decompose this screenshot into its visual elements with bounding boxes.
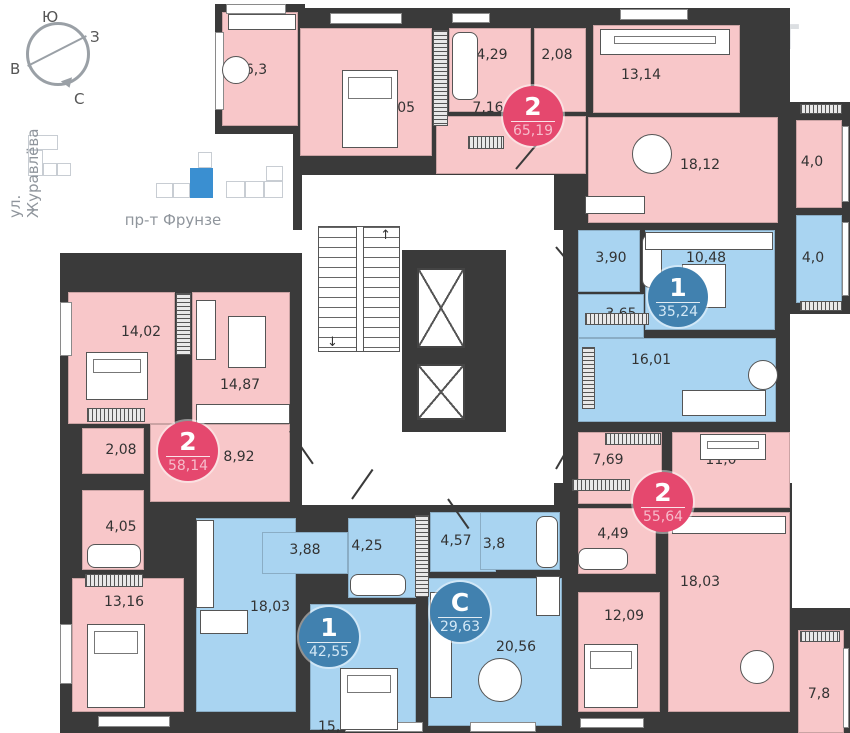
- window: [842, 126, 849, 202]
- window: [60, 624, 72, 684]
- room-area-label-bath-4-25: 4,25: [351, 538, 382, 554]
- room-area-label-hall-8-92: 8,92: [223, 449, 254, 465]
- badge-divider: [656, 302, 699, 303]
- floor-plan: ↑↓6,316,054,292,087,1613,1418,124,04,03,…: [0, 0, 850, 733]
- furniture-circle: [478, 658, 522, 702]
- wardrobe-hatch: [176, 293, 191, 355]
- room-area-label-hall-7-16: 7,16: [472, 100, 503, 116]
- floor-plan-page: ЮЗВС ул. Журавлёва пр-т Фрунзе ОНРЕАЛТ Н…: [0, 0, 850, 733]
- apartment-badge-apt-1-35[interactable]: 135,24: [648, 267, 708, 327]
- furniture-bed: [700, 434, 766, 460]
- furniture-rect: [196, 300, 216, 360]
- window: [330, 13, 402, 24]
- apartment-rooms-count: 2: [654, 480, 671, 505]
- room-area-label-bath-4-49: 4,49: [597, 526, 628, 542]
- window: [226, 4, 286, 14]
- wardrobe-hatch: [468, 136, 504, 149]
- furniture-tub: [350, 574, 406, 596]
- apartment-total-area: 29,63: [440, 620, 480, 634]
- furniture-rect: [645, 232, 773, 250]
- wardrobe-hatch: [433, 30, 448, 126]
- wardrobe-hatch: [800, 104, 842, 114]
- room-area-label-bath-4-29: 4,29: [476, 47, 507, 63]
- room-area-label-bath-4-05: 4,05: [105, 519, 136, 535]
- apartment-badge-apt-2-55[interactable]: 255,64: [633, 472, 693, 532]
- furniture-circle: [748, 360, 778, 390]
- room-area-label-balcony-7-8: 7,8: [808, 686, 830, 702]
- room-kitchen-18-03-b: [668, 512, 790, 712]
- wardrobe-hatch: [87, 408, 145, 422]
- badge-divider: [511, 121, 554, 122]
- furniture-rect: [536, 576, 560, 616]
- furniture-tub: [452, 32, 478, 100]
- furniture-bed: [600, 29, 730, 55]
- stairs[interactable]: ↑↓: [318, 226, 400, 352]
- furniture-rect: [228, 316, 266, 368]
- elevator-icon[interactable]: [417, 364, 465, 420]
- room-area-label-living-16-01: 16,01: [631, 352, 671, 368]
- room-area-label-living-14-87: 14,87: [220, 377, 260, 393]
- furniture-bed: [340, 668, 398, 730]
- furniture-rect: [200, 610, 248, 634]
- room-area-label-hall-4-57: 4,57: [440, 533, 471, 549]
- apartment-rooms-count: 2: [524, 94, 541, 119]
- furniture-rect: [196, 404, 290, 424]
- furniture-tub: [536, 516, 558, 568]
- room-area-label-bedroom-13-14: 13,14: [621, 67, 661, 83]
- apartment-badge-apt-1-42[interactable]: 142,55: [299, 607, 359, 667]
- window: [580, 718, 644, 728]
- apartment-badge-apt-2-65[interactable]: 265,19: [503, 86, 563, 146]
- furniture-rect: [196, 520, 214, 608]
- wardrobe-hatch: [800, 301, 842, 311]
- furniture-bed: [342, 70, 398, 148]
- room-area-label-wc-2-08: 2,08: [541, 47, 572, 63]
- apartment-rooms-count: 1: [669, 275, 686, 300]
- room-area-label-bedroom-13-16: 13,16: [104, 594, 144, 610]
- elevator-icon[interactable]: [417, 268, 465, 348]
- apartment-total-area: 42,55: [309, 645, 349, 659]
- room-area-label-wc-2-08-b: 2,08: [105, 442, 136, 458]
- stairs-down-arrow-icon: ↓: [327, 336, 338, 349]
- furniture-rect: [672, 516, 786, 534]
- apartment-rooms-count: 2: [179, 429, 196, 454]
- apartment-badge-apt-s-29[interactable]: С29,63: [430, 582, 490, 642]
- furniture-circle: [222, 56, 250, 84]
- apartment-badge-apt-2-58[interactable]: 258,14: [158, 421, 218, 481]
- apartment-rooms-count: С: [451, 590, 469, 615]
- furniture-circle: [740, 650, 774, 684]
- room-area-label-balcony-4-0-b: 4,0: [802, 250, 824, 266]
- furniture-bed: [87, 624, 145, 708]
- stairs-up-arrow-icon: ↑: [380, 229, 391, 242]
- furniture-bed: [584, 644, 638, 708]
- badge-divider: [438, 617, 481, 618]
- room-area-label-bedroom-12-09: 12,09: [604, 608, 644, 624]
- room-area-label-hall-3-88: 3,88: [289, 542, 320, 558]
- wardrobe-hatch: [85, 574, 143, 587]
- stairs-divider: [356, 227, 364, 351]
- apartment-total-area: 55,64: [643, 510, 683, 524]
- badge-divider: [166, 456, 209, 457]
- window: [842, 222, 849, 296]
- furniture-circle: [632, 134, 672, 174]
- wardrobe-hatch: [605, 433, 661, 445]
- room-area-label-kitchen-18-03-b: 18,03: [680, 574, 720, 590]
- window: [843, 648, 849, 728]
- room-area-label-living-18-12: 18,12: [680, 157, 720, 173]
- room-area-label-bedroom-14-02: 14,02: [121, 324, 161, 340]
- furniture-rect: [585, 196, 645, 214]
- room-area-label-kitchen-18-03-a: 18,03: [250, 599, 290, 615]
- furniture-tub: [578, 548, 628, 570]
- furniture-rect: [228, 14, 296, 30]
- room-area-label-bath-3-90: 3,90: [595, 250, 626, 266]
- wardrobe-hatch: [585, 313, 649, 325]
- window: [60, 302, 72, 356]
- apartment-total-area: 58,14: [168, 459, 208, 473]
- window: [620, 9, 688, 20]
- wardrobe-hatch: [800, 631, 840, 642]
- room-area-label-bath-3-8: 3,8: [483, 536, 505, 552]
- apartment-rooms-count: 1: [320, 615, 337, 640]
- wardrobe-hatch: [415, 515, 429, 597]
- wardrobe-hatch: [572, 479, 630, 491]
- room-area-label-studio-20-56: 20,56: [496, 639, 536, 655]
- furniture-tub: [87, 544, 141, 568]
- room-area-label-balcony-4-0-a: 4,0: [801, 154, 823, 170]
- badge-divider: [307, 642, 350, 643]
- furniture-bed: [86, 352, 148, 400]
- apartment-total-area: 65,19: [513, 124, 553, 138]
- furniture-rect: [682, 390, 766, 416]
- apartment-total-area: 35,24: [658, 305, 698, 319]
- badge-divider: [641, 507, 684, 508]
- window: [470, 722, 536, 732]
- room-balcony-7-8: [798, 630, 844, 733]
- window: [452, 13, 490, 23]
- wardrobe-hatch: [582, 347, 595, 409]
- room-area-label-hall-7-69: 7,69: [592, 452, 623, 468]
- window: [98, 716, 170, 727]
